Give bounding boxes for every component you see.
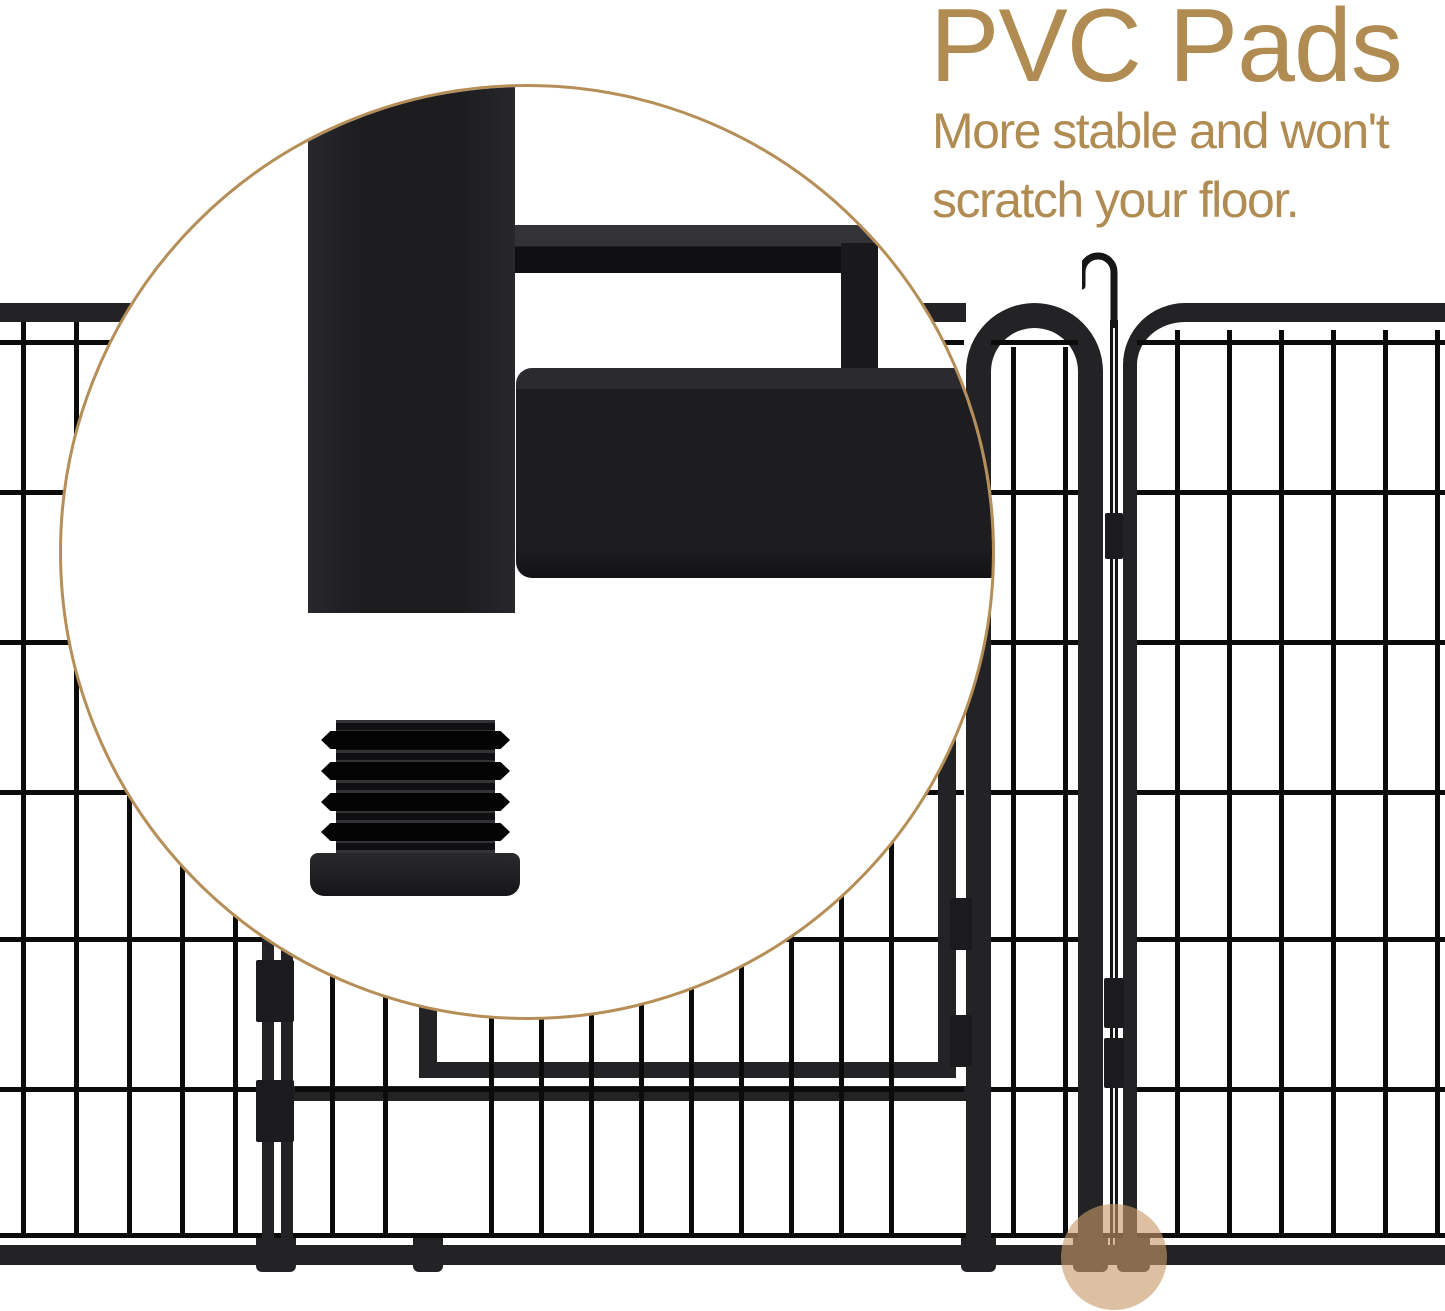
fence-wire-vertical bbox=[21, 322, 26, 1238]
pvc-pad-base bbox=[310, 853, 520, 896]
pvc-pad-rib bbox=[321, 823, 510, 841]
fence-wire-horizontal bbox=[1137, 490, 1445, 495]
product-feature-image: PVC Pads More stable and won't scratch y… bbox=[0, 0, 1445, 1311]
fence-wire-horizontal bbox=[1137, 790, 1445, 795]
fence-wire-vertical bbox=[1435, 330, 1440, 1238]
fence-wire-vertical bbox=[1279, 330, 1284, 1238]
panel-hinge bbox=[256, 960, 294, 1022]
pvc-pad-foot bbox=[413, 1238, 443, 1272]
feature-subtitle-line2: scratch your floor. bbox=[932, 166, 1388, 235]
pvc-pad-foot bbox=[256, 1238, 296, 1272]
fence-wire-vertical bbox=[1175, 330, 1180, 1238]
fence-wire-vertical bbox=[1331, 330, 1336, 1238]
pvc-pad bbox=[310, 720, 520, 896]
latch-guide bbox=[1104, 1038, 1124, 1088]
pvc-pad-foot bbox=[961, 1238, 996, 1272]
magnified-bottom-rail bbox=[516, 368, 995, 578]
fence-wire-vertical bbox=[1063, 347, 1068, 1238]
fence-wire-horizontal bbox=[0, 1087, 272, 1092]
fence-wire-vertical bbox=[1383, 330, 1388, 1238]
panel-hinge bbox=[256, 1080, 294, 1142]
fence-wire-horizontal bbox=[1137, 640, 1445, 645]
feature-subtitle: More stable and won't scratch your floor… bbox=[932, 97, 1388, 235]
right-panel-post bbox=[1123, 470, 1137, 1245]
latch-guide bbox=[1105, 513, 1123, 559]
feature-title: PVC Pads bbox=[930, 0, 1402, 98]
latch-guide bbox=[1104, 978, 1124, 1028]
door-hinge bbox=[950, 898, 972, 950]
gate-latch-hook-icon bbox=[1082, 248, 1128, 328]
right-panel-corner-frame bbox=[1123, 303, 1445, 488]
door-hinge bbox=[950, 1015, 972, 1067]
feature-subtitle-line1: More stable and won't bbox=[932, 97, 1388, 166]
fence-wire-horizontal bbox=[991, 340, 1078, 345]
pvc-pad-rib bbox=[321, 793, 510, 811]
panel-bottom-frame bbox=[0, 1245, 1445, 1265]
magnifier-circle bbox=[59, 84, 995, 1020]
fence-wire-vertical bbox=[1011, 347, 1016, 1238]
fence-wire-vertical bbox=[1227, 330, 1232, 1238]
door-bottom-rail bbox=[419, 1062, 956, 1078]
magnified-vertical-wire bbox=[841, 243, 878, 373]
magnified-horizontal-wire bbox=[515, 225, 878, 273]
pvc-pad-rib bbox=[321, 762, 510, 780]
fence-wire-horizontal bbox=[295, 1087, 964, 1092]
pvc-pad-rib bbox=[321, 731, 510, 749]
fence-wire-horizontal bbox=[1137, 340, 1445, 345]
gate-latch-rod bbox=[1110, 320, 1118, 1252]
fence-wire-horizontal bbox=[1137, 937, 1445, 942]
fence-wire-horizontal bbox=[0, 937, 272, 942]
gate-arch-right-leg bbox=[1078, 478, 1103, 1245]
fence-wire-horizontal bbox=[1137, 1087, 1445, 1092]
magnified-frame-post bbox=[308, 84, 515, 613]
pad-highlight-circle bbox=[1061, 1204, 1167, 1310]
